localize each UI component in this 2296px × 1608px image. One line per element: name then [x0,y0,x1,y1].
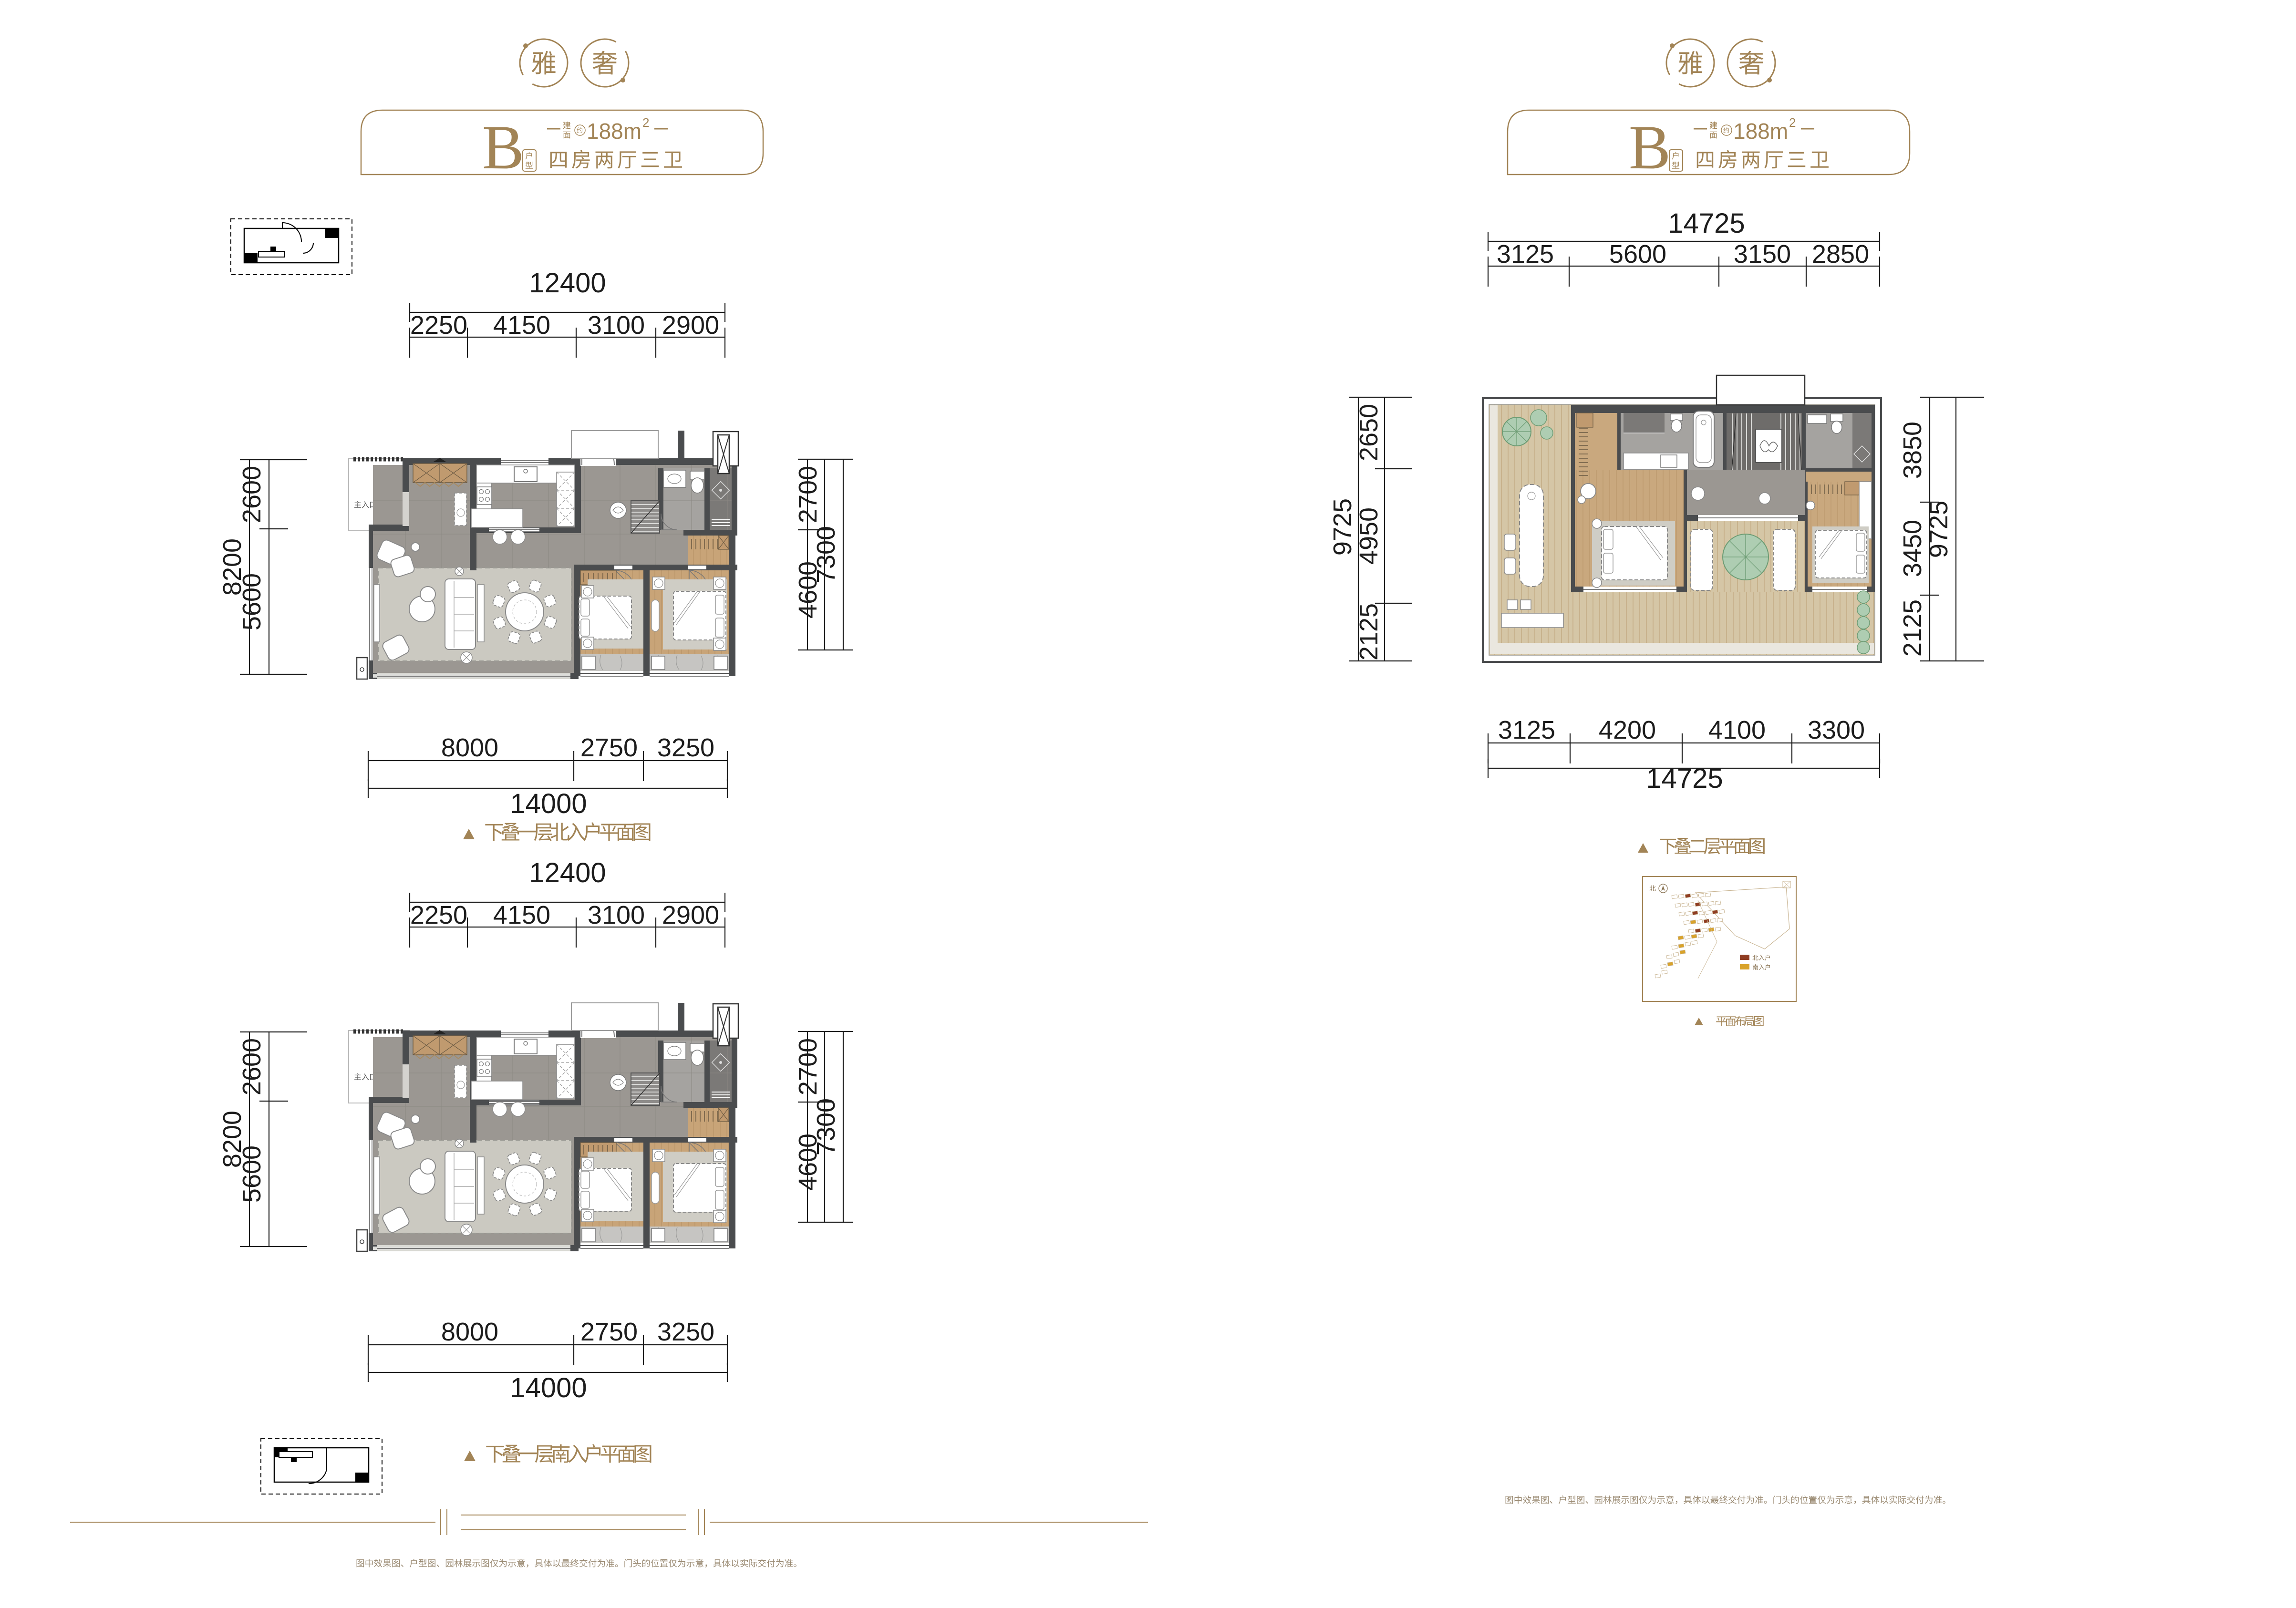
svg-text:B: B [482,112,524,182]
svg-text:8000: 8000 [441,1318,498,1346]
svg-text:2650: 2650 [1355,404,1383,461]
svg-text:7300: 7300 [812,1098,840,1155]
svg-text:2125: 2125 [1355,603,1383,660]
svg-text:3125: 3125 [1497,240,1554,268]
svg-text:14725: 14725 [1668,208,1745,239]
svg-text:4950: 4950 [1355,507,1383,565]
svg-text:3300: 3300 [1808,716,1865,744]
svg-text:2700: 2700 [794,1038,822,1095]
svg-text:3250: 3250 [657,733,714,762]
svg-text:2: 2 [642,115,649,130]
svg-text:188m: 188m [587,119,641,144]
svg-text:2900: 2900 [662,901,719,929]
svg-text:3450: 3450 [1898,520,1927,577]
svg-text:8000: 8000 [441,733,498,762]
svg-text:9725: 9725 [1328,498,1357,556]
svg-text:12400: 12400 [529,857,606,888]
svg-text:3100: 3100 [588,311,645,340]
svg-text:14000: 14000 [510,1372,587,1403]
svg-text:5600: 5600 [238,573,266,630]
svg-text:2600: 2600 [238,1038,266,1095]
svg-text:188m: 188m [1733,119,1788,144]
svg-text:2900: 2900 [662,311,719,340]
svg-text:4150: 4150 [493,901,550,929]
svg-text:9725: 9725 [1924,501,1953,558]
svg-text:2600: 2600 [238,466,266,523]
svg-text:3850: 3850 [1898,422,1927,479]
svg-text:2700: 2700 [794,466,822,523]
svg-text:3100: 3100 [588,901,645,929]
svg-text:3150: 3150 [1734,240,1791,268]
svg-text:4200: 4200 [1599,716,1656,744]
svg-text:2250: 2250 [410,311,467,340]
svg-text:2850: 2850 [1812,240,1869,268]
svg-text:2750: 2750 [580,1318,638,1346]
svg-text:2125: 2125 [1898,599,1927,657]
svg-text:5600: 5600 [238,1145,266,1203]
svg-text:2250: 2250 [410,901,467,929]
svg-text:3250: 3250 [657,1318,714,1346]
svg-text:3125: 3125 [1498,716,1555,744]
svg-text:4150: 4150 [493,311,550,340]
svg-text:14000: 14000 [510,788,587,819]
svg-text:B: B [1629,112,1671,182]
svg-text:12400: 12400 [529,268,606,299]
svg-text:7300: 7300 [812,526,840,583]
svg-text:5600: 5600 [1609,240,1666,268]
svg-text:2750: 2750 [580,733,638,762]
svg-text:4100: 4100 [1708,716,1766,744]
svg-text:2: 2 [1789,115,1796,130]
svg-text:14725: 14725 [1646,763,1723,794]
